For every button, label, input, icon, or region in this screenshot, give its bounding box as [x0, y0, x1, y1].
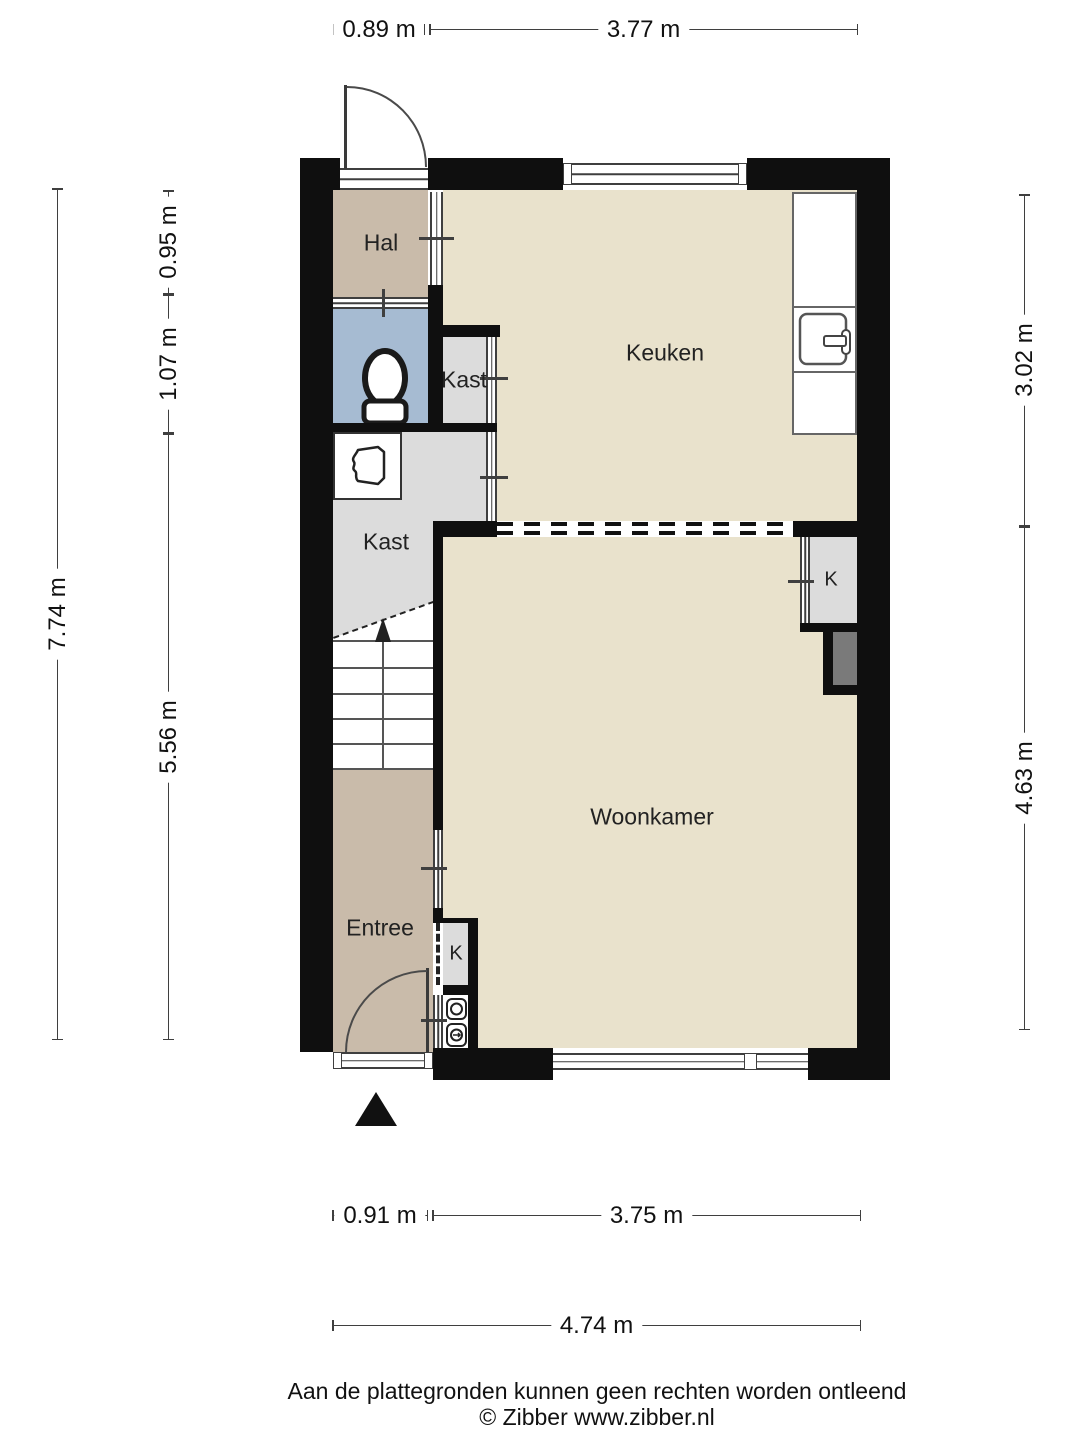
kitchen-window — [563, 163, 747, 185]
dim-label: 0.89 m — [333, 14, 424, 46]
wall-k-top — [793, 521, 857, 537]
room-label-kast-large: Kast — [363, 529, 409, 556]
dim-left-seg-3: 5.56 m — [168, 433, 169, 1040]
threshold-cap — [424, 1052, 433, 1069]
living-room-window — [553, 1053, 808, 1070]
k-upper-tick — [788, 580, 814, 583]
wall-hal-right — [428, 285, 443, 432]
wall-entree-right-1 — [433, 770, 443, 830]
toilet-icon — [357, 348, 413, 426]
window-mullion — [738, 163, 747, 185]
dim-label: 4.63 m — [1009, 732, 1041, 823]
dim-left-seg-1: 0.95 m — [168, 190, 169, 294]
dim-label: 1.07 m — [153, 318, 185, 409]
threshold-cap — [333, 1052, 342, 1069]
dim-label: 4.74 m — [551, 1310, 642, 1342]
wall-bottom-2 — [808, 1048, 890, 1080]
dim-bottom-left: 0.91 m — [332, 1215, 428, 1216]
dim-label: 3.02 m — [1009, 314, 1041, 405]
threshold-tick — [382, 289, 385, 317]
boiler-icon — [346, 442, 390, 490]
wall-entree-right-2 — [433, 908, 443, 923]
window-mullion — [744, 1053, 757, 1070]
wall-top-2 — [428, 158, 563, 190]
room-label-woonkamer: Woonkamer — [590, 804, 714, 831]
wall-kast-small-top — [438, 325, 500, 337]
k-lower-door-dashed — [436, 923, 440, 985]
meter-door — [433, 995, 443, 1048]
room-label-k-upper: K — [824, 569, 837, 592]
back-door-threshold — [340, 168, 428, 190]
divider-dash-bottom — [497, 531, 793, 535]
wall-left — [300, 158, 333, 1052]
chimney-breast — [833, 632, 857, 685]
room-label-keuken: Keuken — [626, 340, 704, 367]
dim-label: 7.74 m — [42, 568, 74, 659]
room-label-k-lower: K — [449, 943, 462, 966]
dim-bottom-total: 4.74 m — [332, 1325, 861, 1326]
stair-center-line — [382, 624, 384, 770]
wall-stairs-right — [433, 521, 443, 770]
window-tick — [421, 867, 447, 870]
floorplan-canvas: Hal Keuken Kast Kast Woonkamer Entree K … — [0, 0, 1080, 1440]
wall-toilet-bottom — [333, 423, 497, 432]
meter-icons — [445, 998, 469, 1048]
footer-copyright: © Zibber www.zibber.nl — [479, 1404, 715, 1431]
stair-bottom-edge — [333, 768, 433, 770]
dim-right-seg-2: 4.63 m — [1024, 526, 1025, 1030]
dim-label: 0.91 m — [334, 1200, 425, 1232]
dim-label: 3.75 m — [601, 1200, 692, 1232]
dim-left-seg-2: 1.07 m — [168, 294, 169, 433]
kast-large-tick — [480, 476, 508, 479]
room-label-hal: Hal — [364, 230, 399, 257]
sink-icon — [794, 310, 860, 372]
dim-top-right: 3.77 m — [429, 29, 858, 30]
room-label-kast-small: Kast — [441, 367, 487, 394]
dim-bottom-right: 3.75 m — [432, 1215, 861, 1216]
front-door-threshold — [333, 1052, 433, 1069]
dim-top-left: 0.89 m — [333, 29, 425, 30]
room-label-entree: Entree — [346, 915, 414, 942]
doorway-tick — [419, 237, 454, 240]
hal-toilet-threshold — [333, 297, 428, 309]
entrance-arrow — [355, 1092, 397, 1126]
kast-small-door — [486, 337, 497, 423]
dim-label: 3.77 m — [598, 14, 689, 46]
stairs-up-arrow — [375, 618, 391, 642]
wall-bottom-1 — [433, 1048, 553, 1080]
dim-label: 0.95 m — [153, 196, 185, 287]
dim-label: 5.56 m — [153, 691, 185, 782]
dim-left-total: 7.74 m — [57, 188, 58, 1040]
wall-kast-large-bottom — [443, 521, 497, 537]
counter-divider — [792, 306, 857, 308]
wall-right — [857, 158, 890, 1080]
back-door-swing-arc — [347, 86, 427, 167]
footer-disclaimer: Aan de plattegronden kunnen geen rechten… — [288, 1378, 907, 1405]
wall-k-bottom — [800, 623, 857, 632]
divider-dash-top — [497, 522, 793, 526]
dim-right-seg-1: 3.02 m — [1024, 194, 1025, 526]
window-mullion — [563, 163, 572, 185]
